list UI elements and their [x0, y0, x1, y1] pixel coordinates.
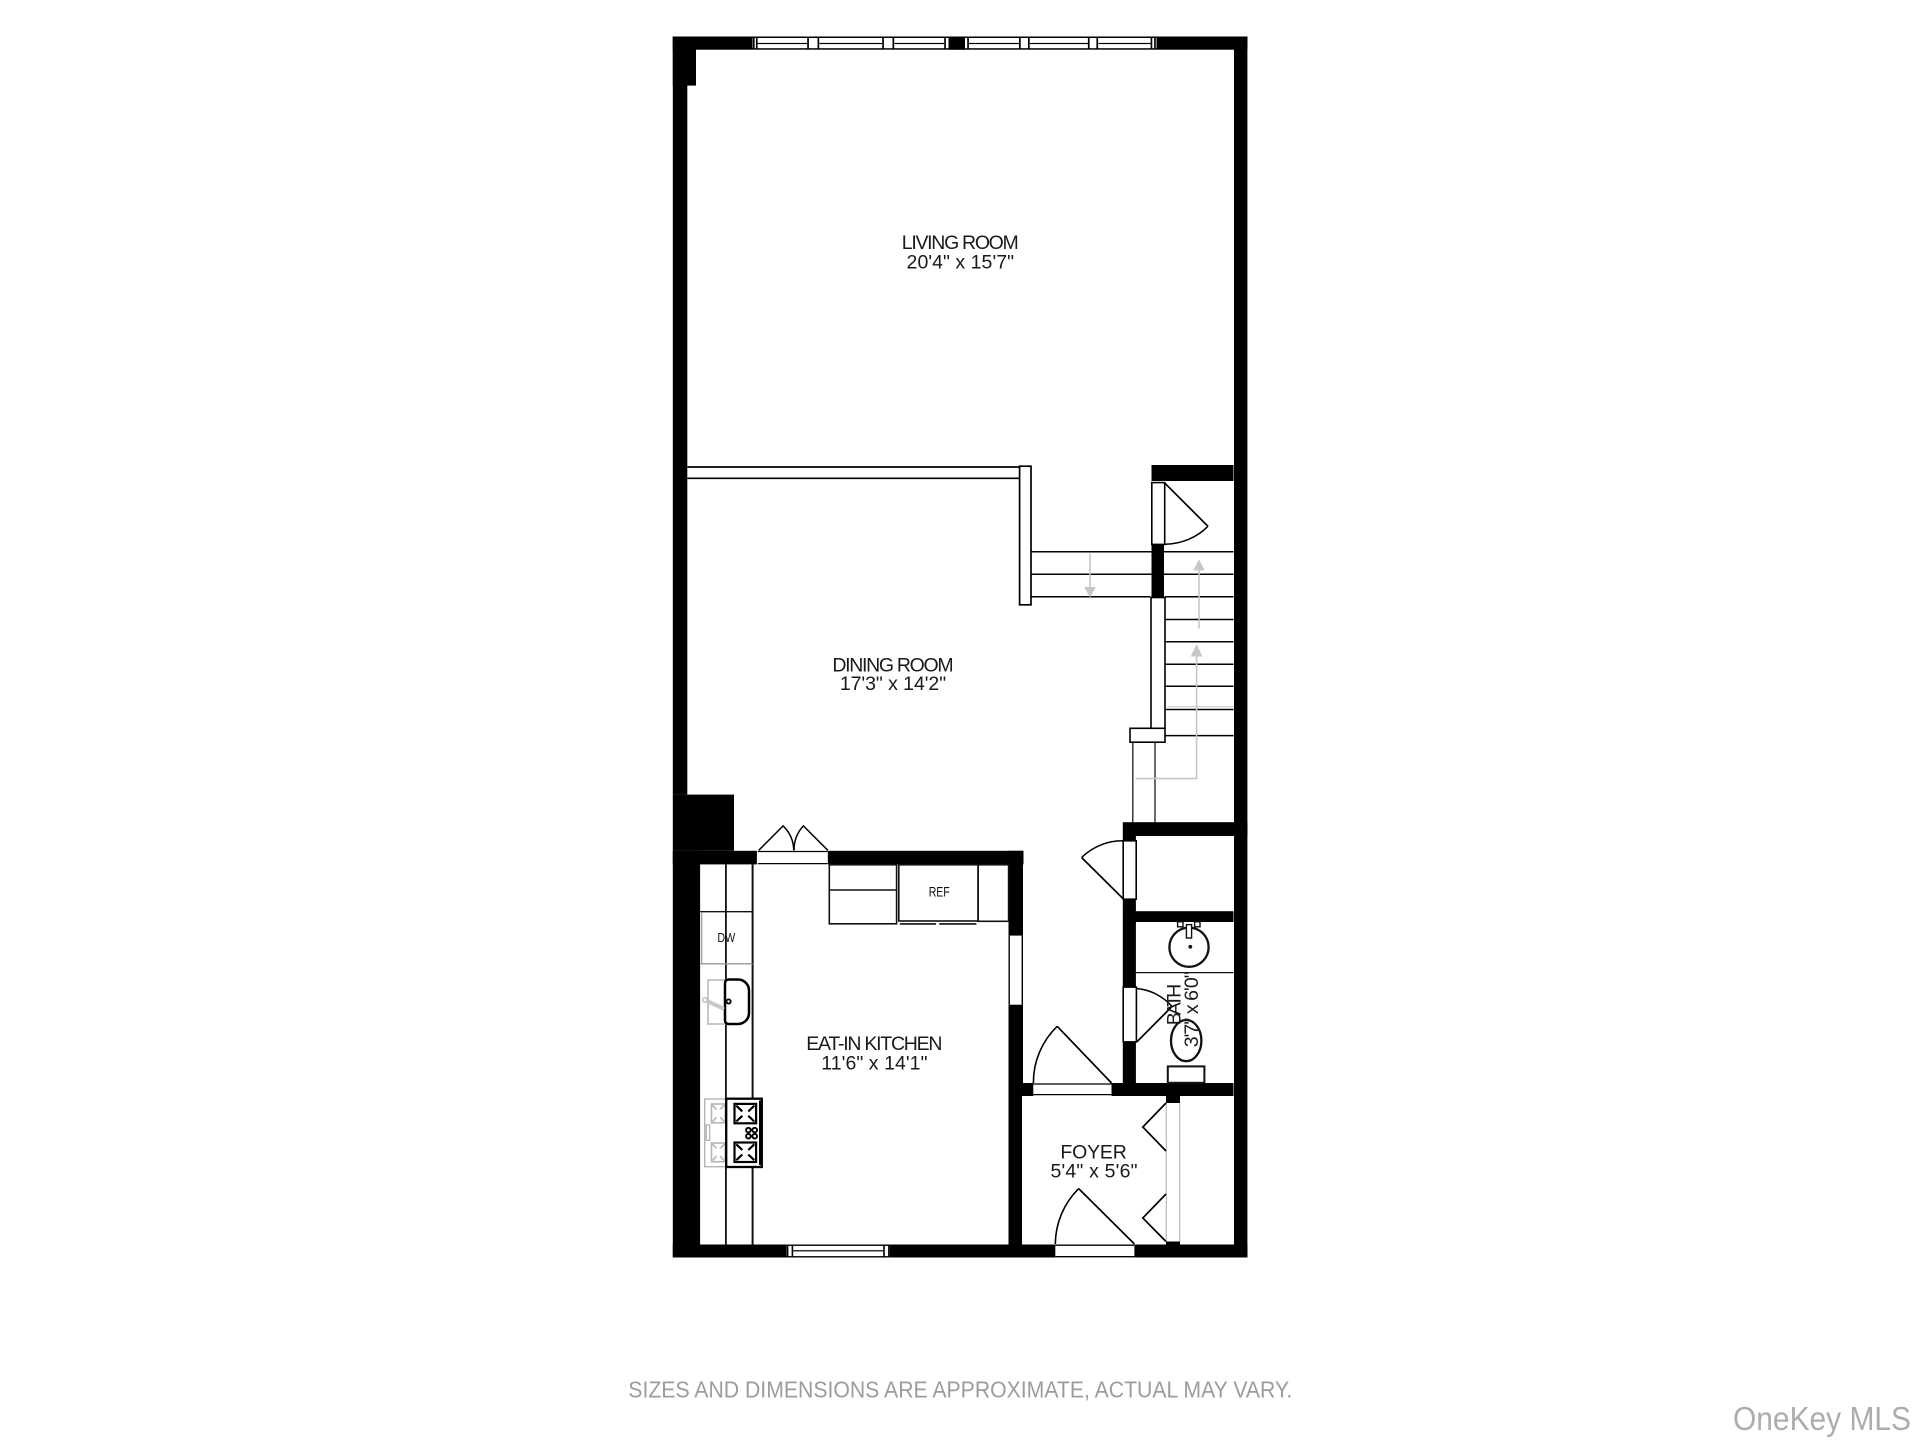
svg-text:5'4" x 5'6": 5'4" x 5'6" — [1050, 1160, 1137, 1182]
svg-text:11'6" x 14'1": 11'6" x 14'1" — [821, 1053, 927, 1075]
svg-text:20'4" x 15'7": 20'4" x 15'7" — [907, 252, 1015, 274]
svg-text:SIZES AND DIMENSIONS ARE APPRO: SIZES AND DIMENSIONS ARE APPROXIMATE, AC… — [628, 1377, 1292, 1403]
svg-text:DW: DW — [717, 930, 735, 945]
svg-text:3'7" x 6'0": 3'7" x 6'0" — [1181, 971, 1203, 1047]
svg-text:REF: REF — [929, 884, 950, 899]
svg-text:17'3" x 14'2": 17'3" x 14'2" — [840, 673, 946, 695]
svg-text:OneKey MLS: OneKey MLS — [1733, 1400, 1911, 1437]
